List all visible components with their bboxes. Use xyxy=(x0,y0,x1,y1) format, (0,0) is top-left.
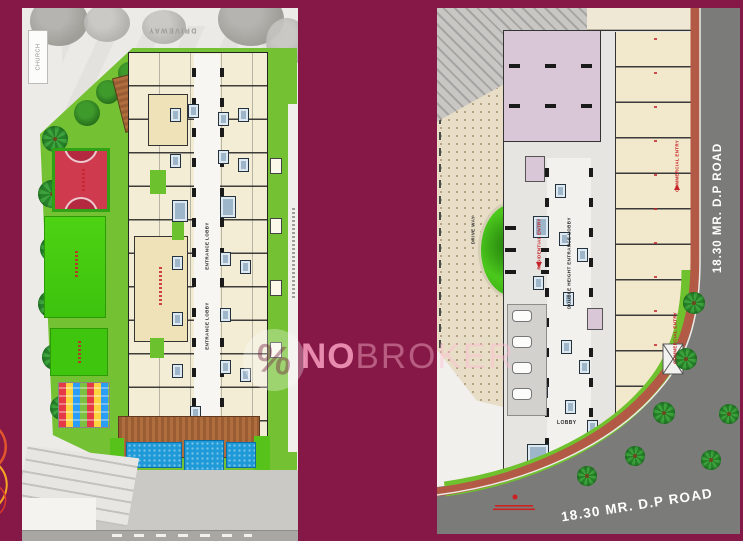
balcony xyxy=(270,158,282,174)
court-micro-label xyxy=(82,169,85,193)
planter xyxy=(150,170,166,194)
left-site-plan-image: DRIVEWAY CHURCH xyxy=(22,8,298,541)
palm-tree-icon xyxy=(625,446,645,466)
lift-core xyxy=(220,196,236,218)
bath-core xyxy=(188,104,199,118)
bath-core xyxy=(240,368,251,382)
balcony xyxy=(270,218,282,234)
sports-court xyxy=(52,148,110,212)
driveway-label: DRIVEWAY xyxy=(148,27,197,34)
commercial-entry-label: COMMERCIAL ENTRY xyxy=(673,312,678,364)
club-lawn xyxy=(50,328,108,376)
bath-core xyxy=(172,364,183,378)
lawn-micro-label xyxy=(75,251,78,279)
lift-core xyxy=(172,200,188,222)
bath-core xyxy=(220,360,231,374)
church-parcel: CHURCH xyxy=(28,30,48,84)
amenity-hall xyxy=(134,236,188,342)
dp-road-graphic xyxy=(437,8,740,534)
bath-core xyxy=(172,312,183,326)
bath-core xyxy=(218,150,229,164)
bath-core xyxy=(172,256,183,270)
kids-play-area xyxy=(58,382,110,428)
dp-road-side-label: 18.30 MR. D.P ROAD xyxy=(712,143,724,273)
property-floorplan-collage: DRIVEWAY CHURCH xyxy=(0,0,743,541)
tree-icon xyxy=(74,100,100,126)
road-marking xyxy=(112,534,252,537)
balcony xyxy=(270,280,282,296)
bath-core xyxy=(238,158,249,172)
lobby-label: LOBBY xyxy=(557,420,577,426)
amenity-room xyxy=(148,94,188,146)
right-floor-plan-image: DRIVE WAY DRIVE WAY xyxy=(437,8,740,534)
palm-tree-icon xyxy=(653,402,675,424)
balcony xyxy=(270,342,282,358)
planter xyxy=(254,436,270,474)
planter xyxy=(150,338,164,358)
bath-core xyxy=(170,154,181,168)
column-line xyxy=(192,68,196,438)
hall-micro-label xyxy=(159,267,162,307)
bath-core xyxy=(238,108,249,122)
multipurpose-lawn xyxy=(44,216,106,318)
palm-tree-icon xyxy=(577,466,597,486)
church-label: CHURCH xyxy=(35,44,41,71)
swimming-pool xyxy=(226,442,256,468)
bath-core xyxy=(240,260,251,274)
entry-arrow-icon xyxy=(674,184,680,190)
palm-tree-icon xyxy=(719,404,739,424)
lawn-micro-label xyxy=(78,341,81,363)
bath-core xyxy=(220,252,231,266)
bath-core xyxy=(170,108,181,122)
palm-tree-icon xyxy=(701,450,721,470)
bath-core xyxy=(220,308,231,322)
entry-arrow-icon xyxy=(536,262,542,268)
double-height-lobby-label: DOUBLE HEIGHT ENTRANCE LOBBY xyxy=(567,217,572,309)
entrance-lobby-label: ENTRANCE LOBBY xyxy=(205,222,210,270)
side-driveway-micro-label xyxy=(292,208,295,298)
watermark-brand-bold: NO xyxy=(301,337,356,376)
bath-core xyxy=(218,112,229,126)
court-arc xyxy=(64,197,98,212)
edge-swirl-decoration xyxy=(0,415,16,520)
palm-tree-icon xyxy=(683,292,705,314)
planter xyxy=(172,222,184,240)
palm-tree-icon xyxy=(675,348,697,370)
entrance-lobby-label: ENTRANCE LOBBY xyxy=(205,302,210,350)
court-arc xyxy=(64,148,98,163)
